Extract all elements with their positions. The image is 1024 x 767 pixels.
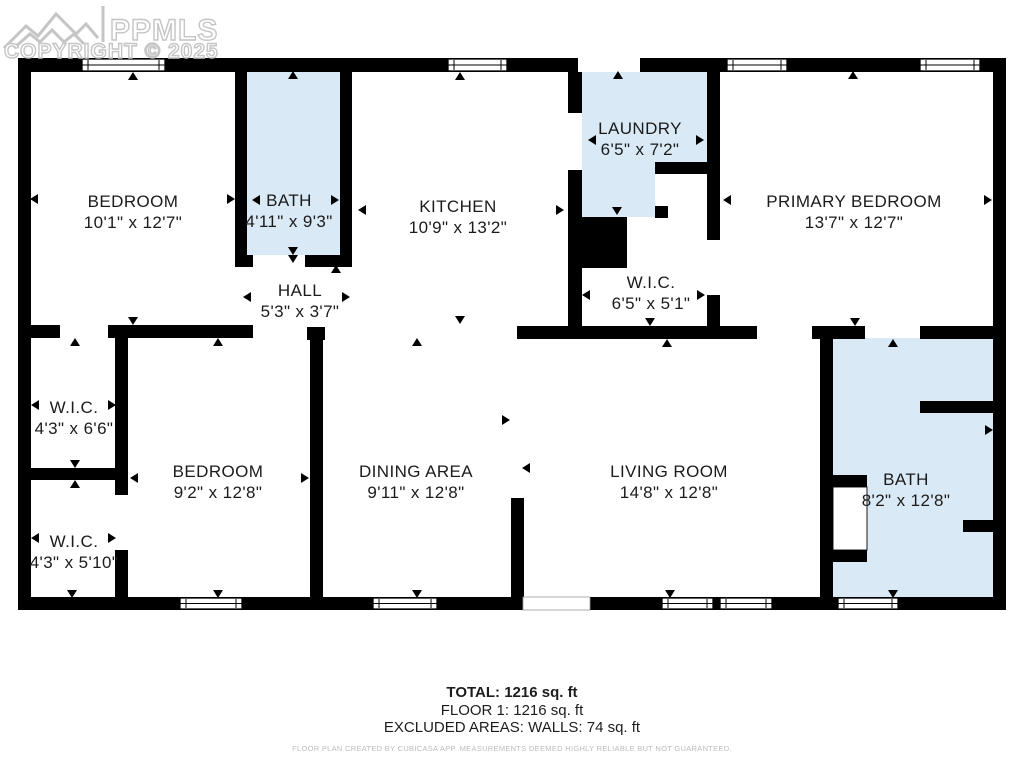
copyright-text: COPYRIGHT © 2025: [4, 40, 219, 62]
ppmls-logo: PPMLS COPYRIGHT © 2025: [0, 0, 240, 62]
total-area-text: TOTAL: 1216 sq. ft: [0, 684, 1024, 702]
disclaimer-text: FLOOR PLAN CREATED BY CUBICASA APP. MEAS…: [0, 744, 1024, 753]
floor-plan-image: BEDROOM10'1" x 12'7"BATH4'11" x 9'3"KITC…: [0, 0, 1024, 767]
area-summary: TOTAL: 1216 sq. ft FLOOR 1: 1216 sq. ft …: [0, 684, 1024, 753]
floor-area-text: FLOOR 1: 1216 sq. ft: [0, 702, 1024, 719]
floor-plan: [0, 0, 1024, 767]
excluded-area-text: EXCLUDED AREAS: WALLS: 74 sq. ft: [0, 719, 1024, 736]
